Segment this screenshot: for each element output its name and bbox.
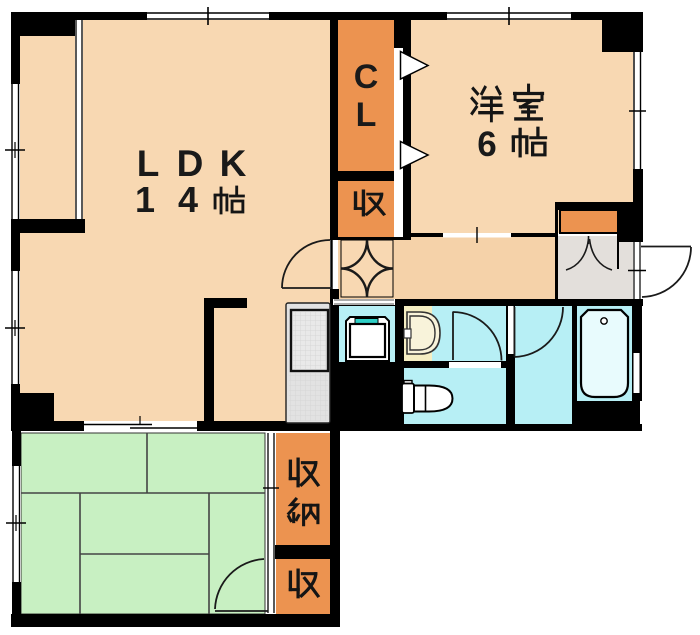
svg-text:C: C: [354, 58, 379, 96]
svg-text:6: 6: [477, 125, 496, 164]
svg-text:4: 4: [178, 179, 198, 220]
svg-text:K: K: [220, 143, 247, 184]
svg-text:L: L: [137, 143, 160, 184]
svg-text:D: D: [177, 143, 204, 184]
svg-text:1: 1: [135, 179, 155, 220]
svg-text:L: L: [356, 96, 377, 134]
